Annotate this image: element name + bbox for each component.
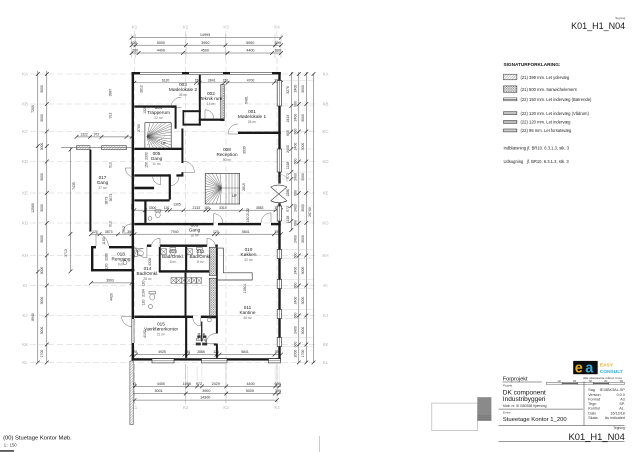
- svg-text:2400: 2400: [294, 114, 298, 122]
- svg-text:120: 120: [213, 230, 219, 234]
- svg-text:2400: 2400: [294, 267, 298, 275]
- svg-text:2400: 2400: [294, 326, 298, 334]
- svg-text:Skala: Skala: [588, 416, 598, 420]
- svg-text:KD: KD: [22, 159, 28, 164]
- svg-text:912: 912: [122, 226, 126, 232]
- svg-text:3000: 3000: [40, 327, 44, 335]
- svg-text:SP.: SP.: [619, 402, 624, 406]
- svg-text:Forprojekt: Forprojekt: [503, 376, 528, 382]
- svg-text:Rengang: Rengang: [111, 257, 130, 262]
- svg-text:4700: 4700: [247, 78, 255, 82]
- svg-text:KL: KL: [323, 360, 329, 365]
- svg-text:UP: UP: [161, 142, 166, 146]
- svg-text:KA: KA: [323, 72, 329, 77]
- svg-text:2000: 2000: [294, 350, 298, 358]
- svg-text:1M: 1M: [557, 381, 560, 383]
- svg-text:4400: 4400: [246, 49, 254, 53]
- svg-text:AL.: AL.: [619, 407, 625, 411]
- svg-text:KA: KA: [22, 72, 28, 77]
- svg-text:K3: K3: [223, 405, 229, 410]
- svg-text:3300: 3300: [149, 206, 157, 210]
- svg-text:1700: 1700: [301, 350, 305, 358]
- svg-text:Teknik rum: Teknik rum: [200, 96, 223, 101]
- svg-text:912: 912: [108, 221, 112, 227]
- svg-text:600: 600: [286, 130, 290, 136]
- svg-text:11 m²: 11 m²: [152, 162, 161, 166]
- svg-text:As indicated: As indicated: [605, 416, 625, 420]
- svg-text:3000: 3000: [40, 235, 44, 243]
- svg-text:13301: 13301: [243, 284, 247, 294]
- svg-text:4420: 4420: [110, 293, 114, 301]
- svg-text:KI: KI: [23, 283, 27, 288]
- svg-text:Kantine: Kantine: [240, 310, 256, 315]
- svg-text:2122: 2122: [246, 208, 250, 216]
- svg-text:150: 150: [204, 206, 210, 210]
- svg-text:K01_H1_N04: K01_H1_N04: [571, 21, 625, 31]
- svg-text:Gang: Gang: [189, 228, 201, 233]
- svg-text:KG: KG: [322, 221, 329, 226]
- svg-text:KJ: KJ: [323, 313, 328, 318]
- svg-text:120: 120: [142, 281, 146, 287]
- svg-text:3000: 3000: [301, 204, 305, 212]
- svg-text:150: 150: [222, 78, 228, 82]
- svg-text:3000: 3000: [301, 267, 305, 275]
- svg-text:e: e: [575, 361, 583, 377]
- svg-text:Bad/Omkl.: Bad/Omkl.: [190, 254, 212, 259]
- svg-text:1305: 1305: [173, 203, 181, 207]
- svg-text:2760: 2760: [137, 124, 141, 132]
- svg-text:Bad/Omkl.: Bad/Omkl.: [162, 254, 184, 259]
- svg-text:600: 600: [294, 159, 298, 165]
- svg-text:37 m²: 37 m²: [98, 186, 107, 190]
- svg-text:Gang: Gang: [151, 156, 163, 161]
- svg-text:5000: 5000: [246, 41, 254, 45]
- svg-text:600: 600: [294, 253, 298, 259]
- svg-text:(22) 120 mm. Let indervæg: (22) 120 mm. Let indervæg: [521, 120, 572, 125]
- svg-text:4M: 4M: [604, 381, 607, 383]
- svg-text:2133: 2133: [193, 206, 201, 210]
- svg-text:600: 600: [294, 313, 298, 319]
- svg-text:(22) 150 mm. Let indervæg (Bær: (22) 150 mm. Let indervæg (Bærende): [521, 97, 593, 102]
- svg-text:14300: 14300: [200, 396, 210, 400]
- svg-text:399: 399: [275, 389, 281, 393]
- svg-text:120: 120: [142, 300, 146, 306]
- svg-text:90 m²: 90 m²: [223, 158, 232, 162]
- svg-text:Kontrol: Kontrol: [588, 407, 600, 411]
- svg-text:3000: 3000: [301, 235, 305, 243]
- svg-text:4328: 4328: [148, 258, 152, 266]
- svg-text:3000: 3000: [40, 267, 44, 275]
- svg-text:KI: KI: [323, 283, 327, 288]
- svg-text:7435: 7435: [72, 182, 76, 190]
- svg-text:SIGNATURFORKLARING:: SIGNATURFORKLARING:: [504, 62, 561, 67]
- svg-text:K4: K4: [274, 405, 280, 410]
- svg-text:600: 600: [294, 129, 298, 135]
- svg-text:2400: 2400: [294, 297, 298, 305]
- svg-text:22 m²: 22 m²: [154, 116, 163, 120]
- svg-text:K01_H1_N04: K01_H1_N04: [569, 431, 625, 442]
- svg-text:A3: A3: [620, 397, 625, 401]
- svg-text:26 m²: 26 m²: [248, 120, 257, 124]
- svg-text:Alle ubenævnte mål er i mm.: Alle ubenævnte mål er i mm.: [583, 376, 623, 380]
- svg-text:3000: 3000: [301, 85, 305, 93]
- svg-text:46 m²: 46 m²: [243, 316, 252, 320]
- svg-text:912: 912: [108, 113, 112, 119]
- svg-text:KJ: KJ: [22, 313, 27, 318]
- svg-text:21 m²: 21 m²: [157, 332, 166, 336]
- svg-text:Tegning: Tegning: [615, 16, 626, 20]
- svg-text:K3: K3: [223, 25, 229, 30]
- svg-text:3000: 3000: [301, 114, 305, 122]
- svg-text:399: 399: [275, 41, 281, 45]
- svg-text:4400: 4400: [246, 382, 254, 386]
- svg-text:Reception: Reception: [216, 152, 238, 157]
- svg-text:5000: 5000: [157, 41, 165, 45]
- svg-text:5841: 5841: [241, 350, 249, 354]
- svg-text:EASY: EASY: [600, 363, 614, 369]
- svg-text:Trapperum: Trapperum: [147, 110, 170, 115]
- svg-text:KE: KE: [323, 191, 329, 196]
- svg-text:3000: 3000: [301, 297, 305, 305]
- svg-text:KE: KE: [22, 191, 28, 196]
- svg-text:2280: 2280: [286, 189, 290, 197]
- svg-text:KK: KK: [22, 342, 28, 347]
- svg-text:Projekt: Projekt: [503, 383, 513, 387]
- svg-text:2280: 2280: [104, 253, 108, 261]
- svg-text:1163: 1163: [102, 237, 106, 245]
- svg-text:3993: 3993: [106, 279, 114, 283]
- svg-text:1099: 1099: [183, 382, 191, 386]
- svg-text:7940: 7940: [171, 230, 179, 234]
- svg-text:1 : 150: 1 : 150: [4, 442, 17, 447]
- svg-text:(00) Stuetage Kontor Møb.: (00) Stuetage Kontor Møb.: [3, 435, 72, 441]
- svg-text:3583: 3583: [256, 206, 264, 210]
- svg-text:Mødelokale 1: Mødelokale 1: [238, 114, 267, 119]
- svg-text:3000: 3000: [40, 85, 44, 93]
- svg-text:KH: KH: [322, 253, 328, 258]
- svg-text:1322: 1322: [80, 133, 88, 137]
- svg-text:1228: 1228: [286, 216, 290, 224]
- svg-text:3987: 3987: [108, 89, 112, 97]
- svg-text:3276: 3276: [286, 86, 290, 94]
- svg-text:KG: KG: [22, 221, 29, 226]
- svg-text:28 m²: 28 m²: [143, 277, 152, 281]
- svg-text:3873: 3873: [105, 230, 113, 234]
- svg-text:400: 400: [131, 41, 137, 45]
- svg-text:2400: 2400: [294, 204, 298, 212]
- svg-text:(21) 399 mm. Let ydervæg: (21) 399 mm. Let ydervæg: [521, 75, 570, 80]
- svg-text:Gang: Gang: [196, 337, 208, 342]
- svg-text:(22) 95 mm. Let forsatsvæg: (22) 95 mm. Let forsatsvæg: [521, 128, 573, 133]
- svg-text:3939: 3939: [243, 146, 247, 154]
- svg-text:Tegning: Tegning: [613, 426, 625, 430]
- svg-text:3000: 3000: [40, 173, 44, 181]
- svg-text:6120: 6120: [162, 78, 170, 82]
- svg-text:9 m²: 9 m²: [118, 262, 125, 266]
- svg-text:699: 699: [275, 49, 281, 53]
- svg-text:2400: 2400: [294, 85, 298, 93]
- svg-text:14999: 14999: [200, 33, 210, 37]
- svg-text:16/12/18: 16/12/18: [610, 412, 624, 416]
- svg-text:CONSULT: CONSULT: [600, 369, 623, 375]
- svg-text:KC: KC: [322, 129, 328, 134]
- svg-text:Stueetage Kontor 1_200: Stueetage Kontor 1_200: [503, 417, 568, 423]
- svg-text:UP: UP: [232, 194, 237, 198]
- svg-text:KL: KL: [22, 360, 28, 365]
- svg-text:K2: K2: [183, 25, 189, 30]
- svg-text:1700: 1700: [40, 350, 44, 358]
- svg-text:KH: KH: [22, 253, 28, 258]
- svg-text:5481: 5481: [245, 96, 249, 104]
- svg-text:(22) 120 mm. Let indervæg (Våd: (22) 120 mm. Let indervæg (Vådrum): [521, 111, 590, 116]
- svg-text:K4: K4: [274, 25, 280, 30]
- svg-text:Gang: Gang: [97, 180, 109, 185]
- svg-text:35 m²: 35 m²: [179, 93, 188, 97]
- svg-text:3000: 3000: [301, 327, 305, 335]
- svg-text:18 m²: 18 m²: [190, 233, 199, 237]
- svg-text:Sag: Sag: [588, 388, 595, 392]
- svg-text:2429: 2429: [212, 382, 220, 386]
- svg-text:Bad/Omkl.: Bad/Omkl.: [137, 271, 159, 276]
- svg-text:32 m²: 32 m²: [244, 258, 253, 262]
- svg-text:2885: 2885: [197, 350, 205, 354]
- svg-text:3000: 3000: [40, 297, 44, 305]
- svg-text:3900: 3900: [202, 389, 210, 393]
- svg-text:150: 150: [144, 162, 148, 168]
- svg-text:5M: 5M: [620, 381, 623, 383]
- svg-text:3000: 3000: [301, 143, 305, 151]
- svg-text:K1: K1: [132, 25, 138, 30]
- svg-text:972: 972: [286, 173, 290, 179]
- svg-text:2400: 2400: [294, 173, 298, 181]
- svg-text:3000: 3000: [40, 143, 44, 151]
- svg-text:3873: 3873: [105, 197, 109, 205]
- svg-text:Format: Format: [588, 397, 600, 401]
- svg-text:3000: 3000: [301, 173, 305, 181]
- svg-text:120: 120: [164, 206, 170, 210]
- svg-text:3000: 3000: [40, 204, 44, 212]
- svg-text:KC: KC: [22, 129, 28, 134]
- svg-text:KD: KD: [322, 159, 328, 164]
- svg-text:2841: 2841: [208, 78, 216, 82]
- svg-text:a: a: [585, 361, 594, 377]
- svg-text:4925: 4925: [158, 350, 166, 354]
- svg-text:(21) 500 mm. Sanwichelement: (21) 500 mm. Sanwichelement: [521, 87, 578, 92]
- svg-text:Mødelokale 2: Mødelokale 2: [169, 87, 198, 92]
- svg-text:K2: K2: [183, 405, 189, 410]
- svg-text:Køkken: Køkken: [241, 252, 257, 257]
- svg-text:3310: 3310: [219, 206, 227, 210]
- svg-text:972: 972: [196, 382, 202, 386]
- svg-text:7200: 7200: [31, 105, 35, 113]
- svg-text:5000: 5000: [246, 389, 254, 393]
- svg-text:120: 120: [104, 264, 108, 270]
- svg-text:600: 600: [294, 190, 298, 196]
- svg-text:5841: 5841: [242, 230, 250, 234]
- svg-text:3M: 3M: [589, 381, 592, 383]
- svg-text:2332: 2332: [144, 152, 148, 160]
- svg-text:972: 972: [94, 133, 100, 137]
- svg-text:3900: 3900: [201, 41, 209, 45]
- svg-text:700: 700: [132, 49, 138, 53]
- svg-text:Matr. nr. 5I I350358 Kjærsing: Matr. nr. 5I I350358 Kjærsing: [503, 404, 547, 408]
- svg-text:2819: 2819: [242, 183, 246, 191]
- svg-text:26700: 26700: [308, 207, 312, 217]
- svg-text:12560: 12560: [31, 203, 35, 213]
- svg-text:5673: 5673: [109, 194, 113, 202]
- svg-text:972: 972: [286, 206, 290, 212]
- svg-text:Emne: Emne: [503, 410, 511, 414]
- svg-text:3000: 3000: [40, 114, 44, 122]
- svg-text:2812: 2812: [139, 85, 143, 93]
- svg-text:8 m²: 8 m²: [170, 260, 177, 264]
- svg-text:Tegn: Tegn: [588, 402, 596, 406]
- svg-text:Værkførerkontor: Værkførerkontor: [144, 327, 179, 332]
- svg-text:1228: 1228: [286, 162, 290, 170]
- svg-text:KB: KB: [323, 102, 329, 107]
- svg-text:4400: 4400: [157, 49, 165, 53]
- svg-text:KK: KK: [323, 342, 329, 347]
- svg-text:Udsugning jf. BR10. 6.3.1.3,: Udsugning jf. BR10. 6.3.1.3, stk. 3: [504, 159, 570, 164]
- svg-text:150: 150: [246, 217, 250, 223]
- svg-text:8 m²: 8 m²: [197, 260, 204, 264]
- svg-text:5001: 5001: [155, 389, 163, 393]
- svg-text:699: 699: [275, 382, 281, 386]
- svg-text:2424: 2424: [286, 115, 290, 123]
- svg-text:120: 120: [92, 230, 98, 234]
- svg-text:3713: 3713: [64, 249, 68, 257]
- svg-text:4500: 4500: [201, 49, 209, 53]
- svg-text:Dato: Dato: [588, 412, 596, 416]
- svg-text:IE15BK3AL-SP: IE15BK3AL-SP: [600, 388, 626, 392]
- svg-text:4400: 4400: [157, 382, 165, 386]
- svg-text:912: 912: [108, 162, 112, 168]
- svg-text:2164: 2164: [142, 289, 146, 297]
- svg-text:600: 600: [294, 283, 298, 289]
- svg-text:2M: 2M: [573, 381, 576, 383]
- svg-text:2400: 2400: [294, 235, 298, 243]
- svg-text:14 m²: 14 m²: [207, 102, 216, 106]
- svg-text:Industribyggeri: Industribyggeri: [503, 396, 546, 403]
- svg-text:8940: 8940: [31, 313, 35, 321]
- svg-text:KB: KB: [22, 102, 28, 107]
- svg-text:2400: 2400: [294, 143, 298, 151]
- svg-text:Indblæsning jf. BR10. 6.3.1.3,: Indblæsning jf. BR10. 6.3.1.3, stk. 3: [504, 145, 570, 150]
